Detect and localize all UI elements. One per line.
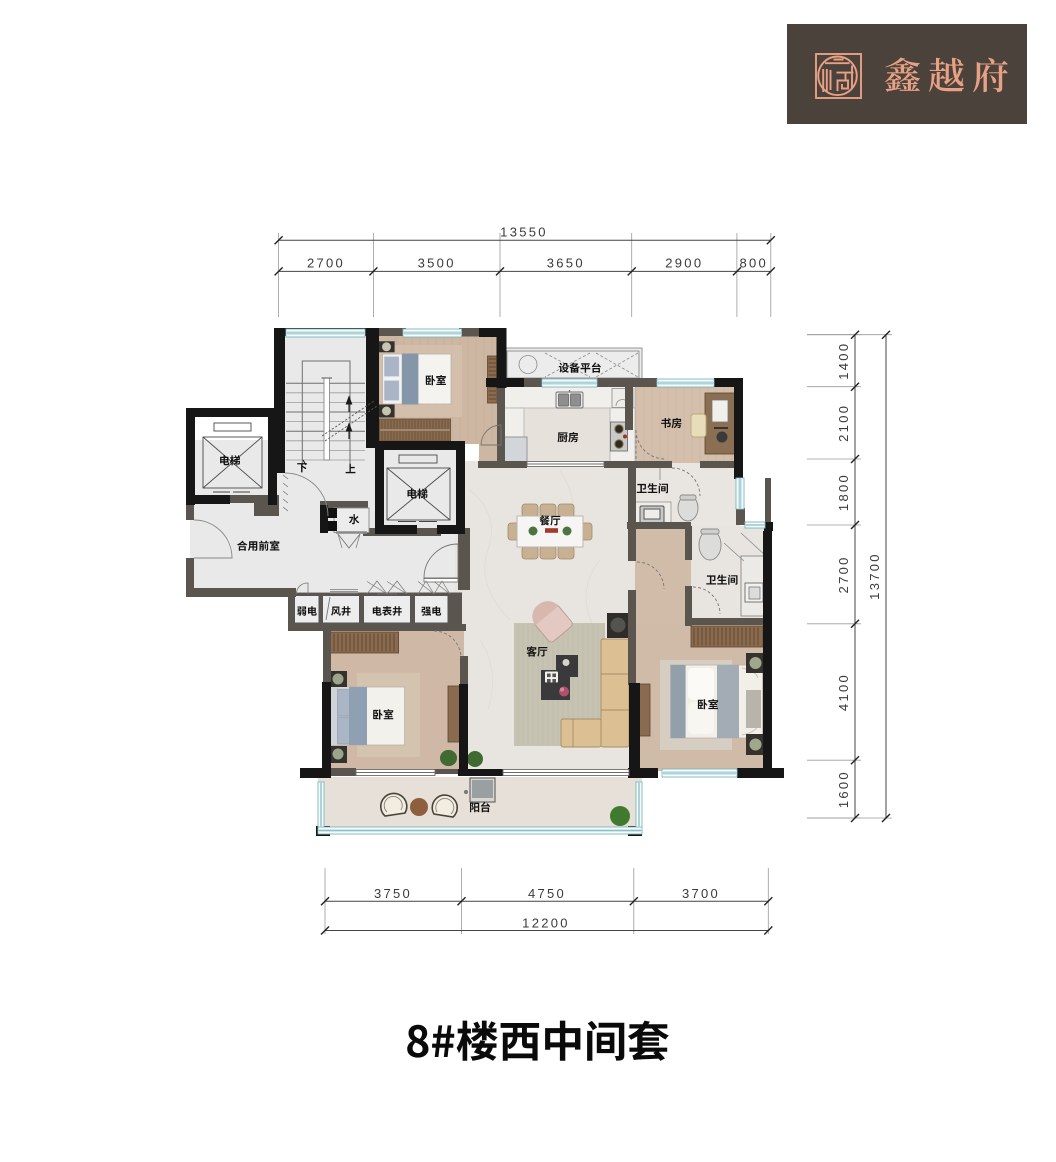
svg-text:3700: 3700	[682, 886, 720, 901]
svg-text:4100: 4100	[836, 673, 851, 711]
svg-text:4750: 4750	[528, 886, 566, 901]
svg-text:3500: 3500	[418, 256, 456, 271]
svg-text:1400: 1400	[836, 342, 851, 380]
svg-text:12200: 12200	[522, 916, 570, 931]
svg-text:3750: 3750	[374, 886, 412, 901]
svg-text:800: 800	[740, 256, 769, 271]
svg-text:2900: 2900	[665, 256, 703, 271]
svg-text:1800: 1800	[836, 473, 851, 511]
svg-text:2700: 2700	[307, 256, 345, 271]
svg-text:3650: 3650	[547, 256, 585, 271]
svg-text:13550: 13550	[500, 225, 548, 240]
svg-text:2700: 2700	[836, 555, 851, 593]
svg-text:13700: 13700	[867, 552, 882, 600]
svg-text:1600: 1600	[836, 770, 851, 808]
svg-text:2100: 2100	[836, 404, 851, 442]
